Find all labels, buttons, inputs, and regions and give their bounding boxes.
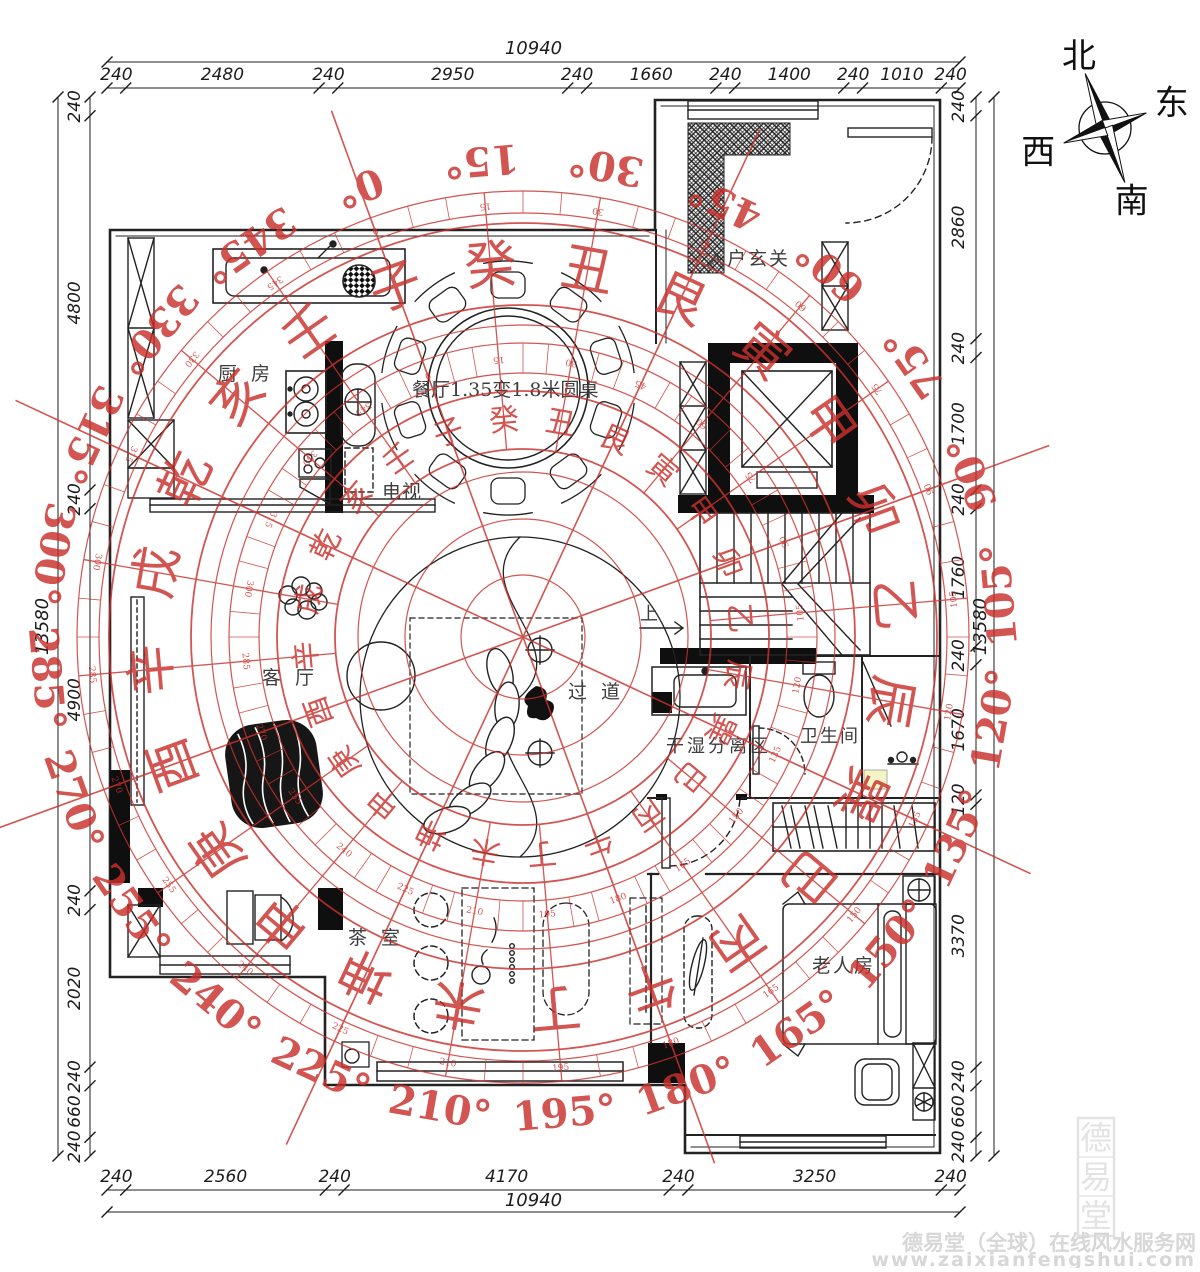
- elder-wardrobe: [913, 1043, 935, 1120]
- compass-minor-number: 75: [870, 381, 885, 396]
- compass-degree-label: 195°: [511, 1085, 618, 1141]
- dim-label: 240: [312, 65, 344, 85]
- compass-mountain-outer: 癸: [462, 234, 519, 298]
- compass-tick: [735, 1004, 746, 1023]
- compass-minor-number: 15: [479, 200, 492, 211]
- compass-mountain-outer: 子: [361, 250, 430, 324]
- compass-degree-label: 30°: [565, 137, 648, 196]
- watermark-seal-char-3: 堂: [1080, 1197, 1112, 1235]
- compass-degree-label: 75°: [874, 318, 956, 407]
- compass-degree-label: 330°: [106, 275, 209, 384]
- dim-label: 240: [837, 65, 869, 85]
- compass-mountain-inner: 寅: [640, 448, 685, 494]
- label-bathroom: 卫生间: [800, 726, 860, 747]
- compass-tick: [239, 561, 268, 569]
- compass-tick: [783, 586, 813, 591]
- dim-label: 240: [934, 65, 966, 85]
- compass-tick: [655, 866, 670, 892]
- compass-degree-label: 285°: [19, 625, 75, 732]
- compass-tick: [408, 1047, 414, 1068]
- compass-tick: [247, 536, 275, 546]
- compass-minor-number: 300: [90, 552, 103, 571]
- compass-minor-number: 315: [122, 444, 138, 464]
- dim-label: 240: [662, 1167, 694, 1187]
- compass-degree-label: 345°: [193, 197, 305, 295]
- compass-minor-number: 30: [591, 205, 604, 217]
- compass-tick: [300, 1004, 311, 1023]
- compass-tick: [370, 1035, 378, 1056]
- compass-mountain-inner: 戌: [289, 582, 329, 618]
- dim-label: 240: [561, 65, 593, 85]
- compass-degree-label: 240°: [161, 952, 270, 1055]
- compass-mountain-outer: 丑: [557, 237, 619, 305]
- compass-tick: [702, 1021, 711, 1041]
- compass-minor-number: 105: [949, 590, 960, 608]
- compass-minor-number: 150: [727, 806, 746, 826]
- compass-mountain-inner: 庚: [322, 739, 368, 784]
- dim-label: 2950: [431, 65, 474, 85]
- dim-label: 2020: [65, 967, 85, 1010]
- dim-label: 240: [709, 65, 741, 85]
- dim-label: 3370: [949, 914, 969, 957]
- dining-chair: [484, 478, 532, 515]
- ornament: [524, 686, 554, 720]
- compass-degree-label: 150°: [838, 890, 941, 999]
- compass-tick: [104, 484, 125, 492]
- dim-label: 1400: [768, 65, 811, 85]
- dim-label: 240: [65, 884, 85, 916]
- dim-label: 2480: [201, 65, 244, 85]
- compass-tick: [208, 937, 224, 953]
- compass-minor-number: 165: [673, 856, 693, 874]
- compass-minor-number: 195: [538, 909, 556, 920]
- compass-tick: [933, 522, 954, 528]
- compass-minor-number: 210: [438, 1057, 457, 1070]
- entry-door-leaf: [848, 128, 932, 137]
- compass-tick: [870, 880, 888, 893]
- compass-mountain-inner: 卯: [705, 543, 748, 583]
- compass-mountain-outer: 辛: [120, 641, 184, 698]
- compass-tick: [907, 449, 927, 458]
- compass-minor-number: 90: [778, 534, 791, 548]
- rose-south-label: 南: [1115, 181, 1149, 221]
- compass-tick: [546, 344, 549, 374]
- compass-mountain-outer: 戌: [123, 542, 191, 604]
- compass-mountain-inner: 丑: [543, 403, 579, 443]
- compass-minor-number: 120: [791, 676, 804, 695]
- tv-unit: [341, 364, 375, 492]
- compass-rose: 北东南西: [1021, 37, 1188, 222]
- compass-tick: [597, 1055, 601, 1077]
- compass-tick: [633, 206, 639, 227]
- compass-tick: [633, 1047, 639, 1068]
- compass-minor-number: 90: [923, 482, 936, 496]
- compass-tick: [158, 381, 176, 394]
- compass-minor-number: 105: [795, 603, 806, 621]
- compass-mountain-inner: 午: [577, 819, 617, 862]
- compass-minor-number: 240: [334, 841, 354, 860]
- compass-tick: [890, 414, 909, 425]
- compass-tick: [239, 705, 268, 713]
- rose-north-label: 北: [1062, 37, 1096, 77]
- compass-minor-number: 285: [239, 652, 250, 670]
- compass-degree-label: 105°: [971, 542, 1027, 649]
- compass-minor-number: 15: [492, 354, 505, 365]
- compass-mountain-outer: 巽: [822, 758, 898, 830]
- label-stairs-up: 上: [640, 604, 658, 625]
- compass-mountain-inner: 乾: [304, 524, 348, 566]
- watermark-seal-char-2: 易: [1080, 1158, 1112, 1196]
- compass-degree-label: 300°: [20, 499, 84, 609]
- dim-label: 660: [949, 1095, 969, 1127]
- dim-label: 1010: [880, 65, 923, 85]
- dim-label: 240: [934, 1167, 966, 1187]
- compass-mountain-outer: 丁: [527, 975, 584, 1039]
- watermark-line2: www.zaixianfengshui.com: [871, 1249, 1196, 1268]
- compass-degree-label: 120°: [962, 665, 1026, 775]
- compass-tick: [422, 885, 432, 913]
- compass-mountain-inner: 辰: [717, 657, 757, 693]
- compass-tick: [267, 984, 280, 1002]
- dim-label: 240: [949, 332, 969, 364]
- compass-tick: [635, 876, 648, 903]
- compass-tick: [354, 853, 371, 878]
- dim-label: 240: [65, 1130, 85, 1162]
- compass-mountain-inner: 未: [468, 831, 504, 871]
- compass-mountain-inner: 申: [361, 780, 406, 826]
- compass-mountain-outer: 午: [616, 949, 685, 1023]
- compass-tick: [376, 866, 391, 892]
- compass-degree-label: 135°: [913, 782, 999, 896]
- compass-degree-label: 180°: [630, 1046, 743, 1126]
- desk: [227, 891, 253, 944]
- compass-minor-number: 45: [633, 377, 648, 391]
- compass-minor-number: 225: [330, 1021, 350, 1037]
- compass-tick: [84, 711, 106, 715]
- compass-minor-number: 285: [86, 666, 97, 684]
- compass-tick: [945, 674, 967, 676]
- compass-mountain-inner: 乙: [720, 602, 757, 635]
- rose-west-label: 西: [1021, 132, 1055, 172]
- compass-degree-label: 90°: [937, 430, 1007, 517]
- compass-tick: [752, 769, 778, 784]
- compass-degree-label: 225°: [264, 1027, 378, 1113]
- dim-label: 240: [100, 65, 132, 85]
- compass-degree-label: 315°: [47, 378, 133, 492]
- dim-label: 240: [949, 1060, 969, 1092]
- compass-mountain-inner: 子: [429, 412, 469, 455]
- compass-minor-number: 210: [465, 905, 484, 918]
- compass-degree-label: 270°: [34, 744, 114, 857]
- compass-mountain-outer: 乙: [861, 576, 925, 633]
- compass-tick: [446, 198, 450, 220]
- compass-minor-number: 225: [395, 882, 415, 898]
- compass-tick: [823, 937, 839, 953]
- compass-tick: [796, 962, 810, 979]
- compass-tick: [230, 611, 260, 614]
- dim-label: 240: [100, 1167, 132, 1187]
- compass-tick: [208, 322, 224, 338]
- compass-tick: [778, 705, 807, 713]
- dim-label: 240: [65, 1060, 85, 1092]
- compass-mountain-outer: 丙: [698, 902, 775, 981]
- compass-mountain-outer: 申: [245, 882, 323, 961]
- compass-tick: [655, 382, 670, 408]
- watermark: 德 易 堂 德易堂（全球）在线风水服务网 www.zaixianfengshui…: [871, 1118, 1196, 1268]
- compass-minor-number: 180: [609, 891, 629, 906]
- watermark-seal-char-1: 德: [1080, 1119, 1112, 1157]
- compass-tick: [613, 361, 623, 389]
- compass-tick: [497, 900, 500, 930]
- compass-tick: [233, 683, 263, 688]
- dim-total: 10940: [505, 38, 562, 59]
- compass-tick: [399, 371, 412, 398]
- compass-mountain-inner: 辛: [288, 639, 325, 672]
- compass-tick: [668, 218, 676, 239]
- compass-tick: [591, 892, 599, 921]
- dim-label: 240: [949, 1130, 969, 1162]
- dim-label: 4800: [65, 281, 85, 324]
- entry-door-swing: [846, 137, 932, 223]
- label-corridor: 过 道: [568, 681, 624, 703]
- compass-tick: [408, 206, 414, 227]
- ceiling-symbols: [524, 636, 554, 767]
- rose-east-label: 东: [1155, 84, 1189, 124]
- dim-label: 2860: [949, 206, 969, 249]
- luopan-compass: 子子癸癸丑丑艮艮寅寅甲甲卯卯乙乙辰辰巽巽巳巳丙丙午午丁丁未未坤坤申申庚庚酉酉辛辛…: [0, 111, 1049, 1163]
- compass-tick: [560, 193, 562, 215]
- elder-chair: [855, 1059, 899, 1105]
- closet-door-swing: [670, 798, 740, 866]
- compass-mountain-inner: 癸: [488, 402, 521, 439]
- compass-mountain-inner: 丁: [525, 834, 558, 871]
- compass-mountain-outer: 辰: [855, 671, 923, 733]
- compass-mountain-inner: 壬: [376, 436, 421, 482]
- compass-mountain-inner: 巳: [666, 754, 712, 799]
- dim-label: 4170: [485, 1167, 528, 1187]
- dim-label: 2560: [204, 1167, 247, 1187]
- compass-minor-number: 30: [565, 356, 578, 368]
- compass-tick: [137, 849, 156, 860]
- compass-degree-label: 255°: [83, 855, 181, 967]
- compass-tick: [766, 272, 779, 290]
- compass-tick: [376, 382, 391, 408]
- compass-tick: [447, 353, 455, 382]
- compass-minor-number: 195: [552, 1063, 570, 1074]
- compass-mountain-outer: 未: [428, 969, 490, 1037]
- compass-minor-number: 300: [242, 579, 255, 598]
- compass-tick: [472, 347, 477, 377]
- compass-tick: [181, 910, 198, 924]
- compass-tick: [268, 490, 294, 505]
- compass-tick: [300, 251, 311, 270]
- dim-label: 240: [318, 1167, 350, 1187]
- compass-tick: [693, 839, 712, 862]
- dim-label: 660: [65, 1095, 85, 1127]
- dim-label: 240: [949, 639, 969, 671]
- dim-label: 1660: [630, 65, 673, 85]
- compass-degree-label: 15°: [442, 134, 521, 187]
- dim-total: 10940: [505, 1190, 562, 1211]
- compass-mountain-outer: 寅: [723, 312, 801, 391]
- compass-mountain-inner: 酉: [298, 691, 341, 731]
- dim-label: 3250: [793, 1167, 836, 1187]
- compass-tick: [315, 824, 336, 845]
- dim-label: 240: [65, 90, 85, 122]
- compass-mountain-outer: 酉: [136, 730, 210, 799]
- compass-degree-label: 165°: [741, 980, 853, 1078]
- dim-label: 240: [949, 90, 969, 122]
- compass-degree-label: 0°: [329, 158, 390, 219]
- floorplan-scene: 厨 房 入户玄关 电视 餐厅1.35变1.8米圆桌 客 厅 过 道 干湿分离区 …: [0, 0, 1200, 1268]
- label-dining: 餐厅1.35变1.8米圆桌: [412, 379, 599, 401]
- compass-tick: [569, 897, 574, 927]
